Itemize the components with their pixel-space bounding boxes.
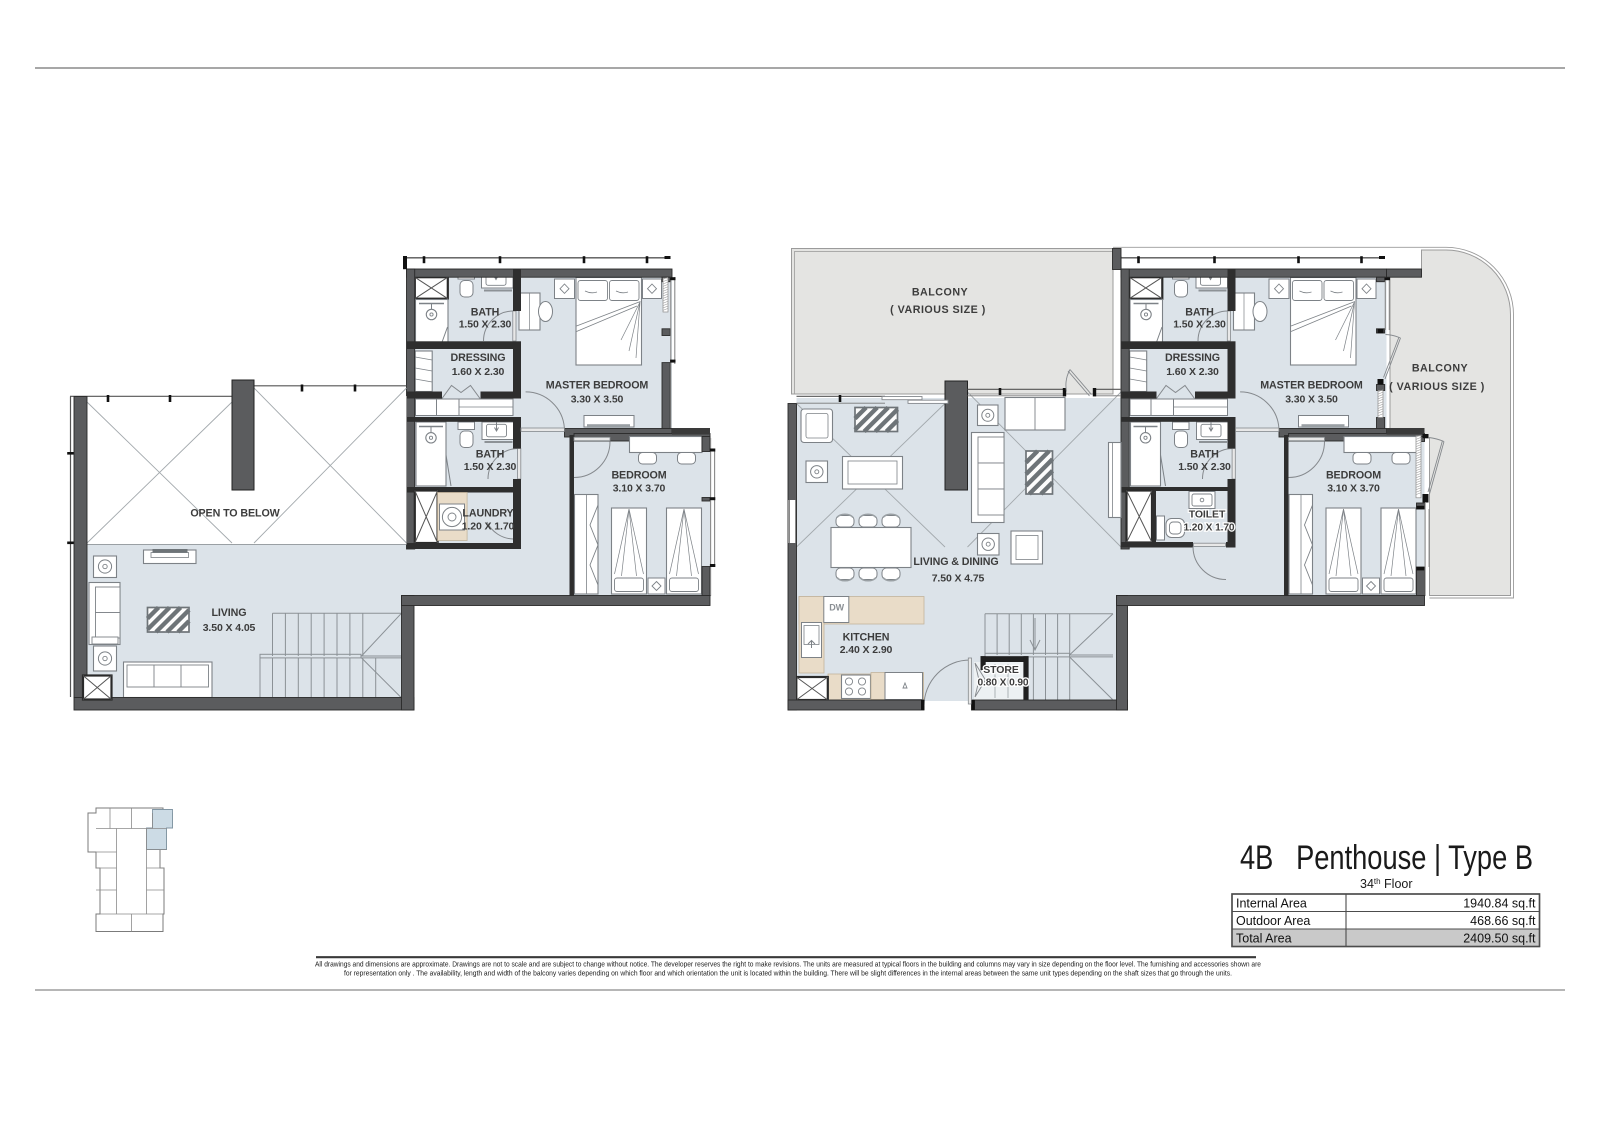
svg-text:3.10 X 3.70: 3.10 X 3.70 bbox=[613, 483, 666, 495]
svg-text:1.60 X 2.30: 1.60 X 2.30 bbox=[452, 366, 505, 378]
svg-text:468.66 sq.ft: 468.66 sq.ft bbox=[1470, 914, 1536, 928]
svg-text:3.30 X 3.50: 3.30 X 3.50 bbox=[1285, 394, 1338, 406]
svg-text:DRESSING: DRESSING bbox=[1165, 352, 1220, 364]
svg-text:7.50 X 4.75: 7.50 X 4.75 bbox=[932, 573, 985, 585]
svg-text:LIVING & DINING: LIVING & DINING bbox=[913, 556, 998, 568]
svg-text:BALCONY: BALCONY bbox=[912, 287, 968, 299]
svg-text:Total Area: Total Area bbox=[1236, 932, 1292, 946]
svg-text:BATH: BATH bbox=[476, 449, 505, 461]
svg-text:DW: DW bbox=[829, 603, 844, 613]
svg-text:KITCHEN: KITCHEN bbox=[843, 632, 890, 644]
svg-text:Outdoor Area: Outdoor Area bbox=[1236, 914, 1310, 928]
svg-text:1.50 X 2.30: 1.50 X 2.30 bbox=[464, 461, 517, 473]
svg-text:LIVING: LIVING bbox=[211, 607, 246, 619]
svg-text:OPEN TO BELOW: OPEN TO BELOW bbox=[190, 508, 280, 520]
svg-text:2.40 X 2.90: 2.40 X 2.90 bbox=[840, 644, 893, 656]
svg-text:3.30 X 3.50: 3.30 X 3.50 bbox=[571, 394, 624, 406]
svg-text:BATH: BATH bbox=[1185, 307, 1214, 319]
svg-text:BEDROOM: BEDROOM bbox=[611, 470, 666, 482]
svg-text:2409.50 sq.ft: 2409.50 sq.ft bbox=[1463, 932, 1536, 946]
svg-text:BATH: BATH bbox=[1190, 449, 1219, 461]
svg-text:( VARIOUS SIZE ): ( VARIOUS SIZE ) bbox=[890, 304, 986, 316]
svg-text:1.50 X 2.30: 1.50 X 2.30 bbox=[459, 319, 512, 331]
svg-text:All drawings and dimensions ar: All drawings and dimensions are approxim… bbox=[315, 962, 1261, 969]
svg-text:1.60 X 2.30: 1.60 X 2.30 bbox=[1166, 366, 1219, 378]
svg-text:BALCONY: BALCONY bbox=[1412, 363, 1468, 375]
svg-text:3.50 X 4.05: 3.50 X 4.05 bbox=[203, 622, 256, 634]
svg-text:for representation only . The: for representation only . The availabili… bbox=[344, 971, 1232, 978]
svg-text:TOILET: TOILET bbox=[1189, 509, 1226, 521]
svg-text:LAUNDRY: LAUNDRY bbox=[462, 508, 513, 520]
svg-text:( VARIOUS SIZE ): ( VARIOUS SIZE ) bbox=[1389, 381, 1485, 393]
svg-text:3.10 X 3.70: 3.10 X 3.70 bbox=[1327, 483, 1380, 495]
svg-text:1.20 X 1.70: 1.20 X 1.70 bbox=[1183, 523, 1234, 534]
svg-text:34th Floor: 34th Floor bbox=[1360, 877, 1413, 892]
svg-text:BEDROOM: BEDROOM bbox=[1326, 470, 1381, 482]
svg-text:0.80 X 0.90: 0.80 X 0.90 bbox=[977, 678, 1028, 689]
svg-text:Internal Area: Internal Area bbox=[1236, 897, 1307, 911]
svg-text:1.50 X 2.30: 1.50 X 2.30 bbox=[1173, 319, 1226, 331]
svg-text:1.50 X 2.30: 1.50 X 2.30 bbox=[1178, 461, 1231, 473]
svg-text:STORE: STORE bbox=[983, 664, 1019, 676]
svg-text:4B Penthouse | Type B: 4B Penthouse | Type B bbox=[1240, 839, 1533, 877]
svg-text:1940.84 sq.ft: 1940.84 sq.ft bbox=[1463, 897, 1536, 911]
svg-text:MASTER BEDROOM: MASTER BEDROOM bbox=[1260, 380, 1363, 392]
svg-text:MASTER BEDROOM: MASTER BEDROOM bbox=[546, 380, 649, 392]
svg-text:DRESSING: DRESSING bbox=[450, 352, 505, 364]
svg-text:BATH: BATH bbox=[471, 307, 500, 319]
svg-text:1.20 X 1.70: 1.20 X 1.70 bbox=[462, 521, 515, 533]
